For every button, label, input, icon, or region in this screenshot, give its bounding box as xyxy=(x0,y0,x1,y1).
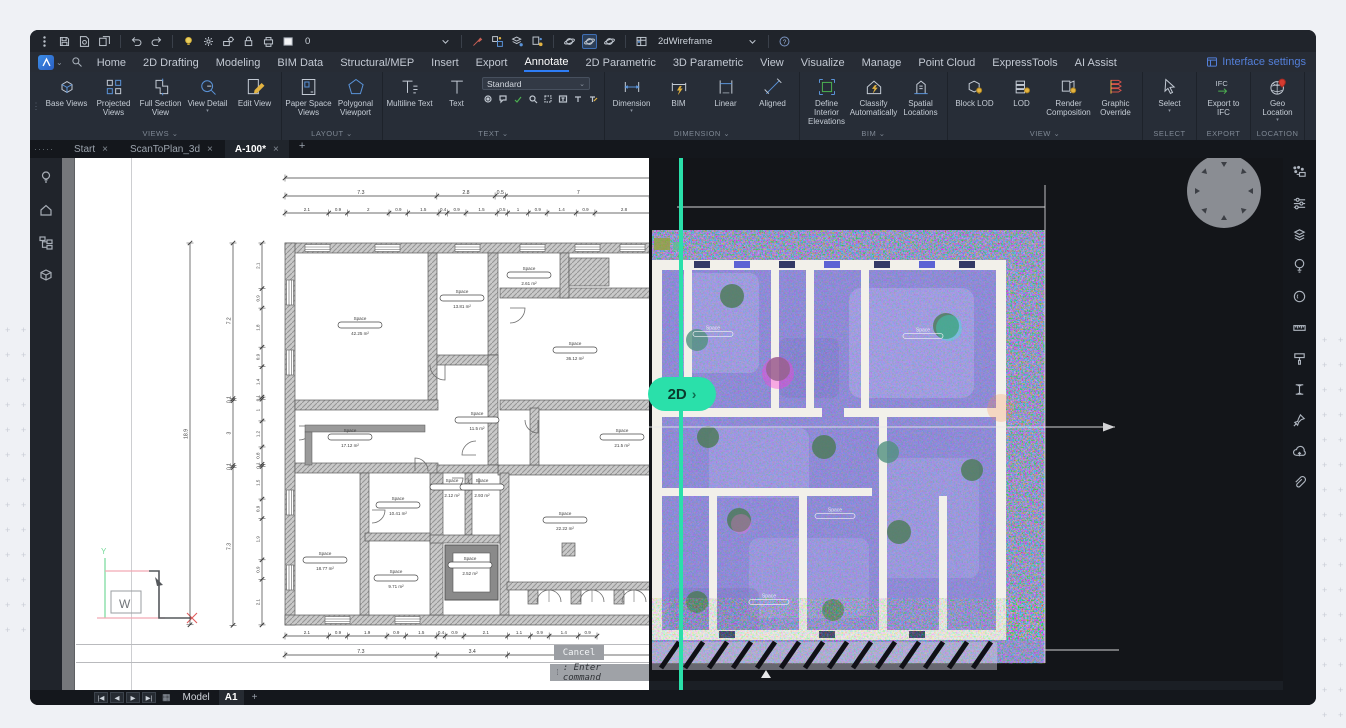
svg-text:W: W xyxy=(119,597,131,611)
tab-bar-grip[interactable]: ····· xyxy=(34,144,54,154)
room-label: Space36.12 m² xyxy=(553,341,597,361)
svg-text:7.2: 7.2 xyxy=(227,317,233,324)
svg-text:1.4: 1.4 xyxy=(561,630,568,635)
svg-text:1: 1 xyxy=(517,207,520,212)
settings-gear-icon[interactable] xyxy=(201,34,216,49)
svg-text:0.5: 0.5 xyxy=(499,207,506,212)
svg-text:Space: Space xyxy=(616,428,629,433)
full-section-view-button[interactable]: Full Section View xyxy=(137,74,184,117)
dim-linear-icon xyxy=(716,76,736,98)
toolbar-separator xyxy=(625,35,626,48)
classify-icon xyxy=(864,76,884,98)
svg-text:13.81 m²: 13.81 m² xyxy=(453,304,471,309)
svg-text:Space: Space xyxy=(456,289,469,294)
drawing-canvas: Y W 7.32.80.572.10.920.91.50.40.91.50.51… xyxy=(62,158,1316,690)
svg-text:Space: Space xyxy=(392,496,405,501)
ribbon-group-location: Geo Location▾LOCATION xyxy=(1251,72,1305,140)
svg-text:0.9: 0.9 xyxy=(451,630,458,635)
light-button[interactable] xyxy=(1291,287,1309,305)
svg-text:0.8: 0.8 xyxy=(256,452,261,459)
find-icon[interactable] xyxy=(527,93,539,105)
layer-states-icon[interactable] xyxy=(510,34,525,49)
bottom-marker xyxy=(761,670,771,678)
svg-text:7: 7 xyxy=(577,190,580,196)
svg-text:18.77 m²: 18.77 m² xyxy=(316,566,334,571)
svg-text:2: 2 xyxy=(367,207,370,212)
svg-text:IFC: IFC xyxy=(1215,79,1228,88)
polygonal-viewport-icon xyxy=(346,76,366,98)
svg-text:7.3: 7.3 xyxy=(357,190,364,196)
svg-text:0.1: 0.1 xyxy=(227,463,233,470)
last-layout-button[interactable]: ▶| xyxy=(142,692,156,703)
toolbar-grip[interactable] xyxy=(37,34,52,49)
add-layout-button[interactable]: + xyxy=(247,692,263,703)
lod-icon xyxy=(1012,76,1032,98)
svg-text:0.1: 0.1 xyxy=(227,396,233,403)
menu-bar: ⌄ Home2D DraftingModelingBIM DataStructu… xyxy=(30,52,1316,72)
field-icon[interactable] xyxy=(482,93,494,105)
svg-text:21.5 m²: 21.5 m² xyxy=(614,443,630,448)
spatial-icon xyxy=(911,76,931,98)
next-layout-button[interactable]: ▶ xyxy=(126,692,140,703)
new-document-tab-button[interactable]: + xyxy=(291,140,313,158)
geo-location-button[interactable]: Geo Location▾ xyxy=(1254,74,1301,122)
ribbon-group-views: Base ViewsProjected ViewsFull Section Vi… xyxy=(40,72,282,140)
spell-check-icon[interactable] xyxy=(512,93,524,105)
layer-bulb-icon[interactable] xyxy=(181,34,196,49)
annotation-icon[interactable] xyxy=(497,93,509,105)
svg-text:0.9: 0.9 xyxy=(393,630,400,635)
room-label: Space13.81 m² xyxy=(440,289,484,309)
svg-text:2.61 m²: 2.61 m² xyxy=(521,281,537,286)
block-lod-button[interactable]: Block LOD xyxy=(951,74,998,108)
layer-settings-icon[interactable] xyxy=(221,34,236,49)
paint-button[interactable] xyxy=(1291,349,1309,367)
doc-tab-a-100[interactable]: A-100*× xyxy=(225,140,289,158)
viewport-point-cloud[interactable]: SpaceSpaceSpaceSpace xyxy=(649,158,1283,690)
menu-tab-structural-mep[interactable]: Structural/MEP xyxy=(340,54,414,71)
materials-button[interactable] xyxy=(1291,318,1309,336)
svg-text:0.9: 0.9 xyxy=(585,630,592,635)
margin-plus-pattern-right: ++++++++++++++++++++++++++++++++ xyxy=(1322,328,1346,728)
linear-button[interactable]: Linear xyxy=(702,74,749,108)
view-wireframe-icon[interactable] xyxy=(602,34,617,49)
chevron-down-icon: ⌄ xyxy=(579,80,585,88)
view-detail-button[interactable]: View Detail▾ xyxy=(184,74,231,113)
paper-space-views-icon xyxy=(299,76,319,98)
svg-text:Space: Space xyxy=(446,478,459,483)
svg-text:17.12 m²: 17.12 m² xyxy=(341,443,359,448)
color-swatch[interactable] xyxy=(281,34,296,49)
export-to-ifc-button[interactable]: IFCExport to IFC xyxy=(1200,74,1247,117)
select-icon xyxy=(1160,76,1180,98)
menu-tab-3d-parametric[interactable]: 3D Parametric xyxy=(673,54,743,71)
multiline-text-button[interactable]: Multiline Text xyxy=(386,74,433,108)
ribbon-group-export: IFCExport to IFCEXPORT xyxy=(1197,72,1251,140)
svg-text:Space: Space xyxy=(523,266,536,271)
properties-painter-icon[interactable] xyxy=(530,34,545,49)
svg-text:Space: Space xyxy=(916,328,930,334)
base-views-button[interactable]: Base Views xyxy=(43,74,90,108)
svg-text:36.12 m²: 36.12 m² xyxy=(566,356,584,361)
svg-text:2.8: 2.8 xyxy=(462,190,469,196)
dim-bim-icon xyxy=(669,76,689,98)
doc-tab-start[interactable]: Start× xyxy=(64,140,118,158)
block-lod-icon xyxy=(965,76,985,98)
svg-text:Space: Space xyxy=(559,511,572,516)
svg-text:0.9: 0.9 xyxy=(256,353,261,360)
geo-location-icon xyxy=(1268,76,1288,98)
svg-text:?: ? xyxy=(783,38,787,45)
menu-tab-export[interactable]: Export xyxy=(476,54,508,71)
right-toolbar xyxy=(1283,158,1316,690)
svg-text:Space: Space xyxy=(828,508,842,514)
horizontal-scrollbar[interactable] xyxy=(649,681,1283,690)
main-area: Y W 7.32.80.572.10.920.91.50.40.91.50.51… xyxy=(30,158,1316,690)
app-window: 02dWireframe? ⌄ Home2D DraftingModelingB… xyxy=(30,30,1316,705)
svg-text:Space: Space xyxy=(471,411,484,416)
svg-text:0.9: 0.9 xyxy=(335,207,342,212)
menu-tab-ai-assist[interactable]: AI Assist xyxy=(1075,54,1117,71)
menu-tab-view[interactable]: View xyxy=(760,54,784,71)
menu-tab-2d-parametric[interactable]: 2D Parametric xyxy=(586,54,656,71)
document-tab-bar: ····· Start×ScanToPlan_3d×A-100*×+ xyxy=(30,140,1316,158)
navigation-circle-widget[interactable] xyxy=(1187,158,1261,228)
tab-layout-a1[interactable]: A1 xyxy=(219,690,244,705)
view-shaded-icon[interactable] xyxy=(582,34,597,49)
svg-text:0.1: 0.1 xyxy=(256,462,261,469)
profiles-button[interactable] xyxy=(1291,380,1309,398)
svg-text:2.12 m²: 2.12 m² xyxy=(444,493,460,498)
layers-button[interactable] xyxy=(1291,225,1309,243)
svg-text:0.9: 0.9 xyxy=(537,630,544,635)
publish-icon[interactable] xyxy=(97,34,112,49)
left-toolbar xyxy=(30,158,62,690)
doc-tab-scantoplan-3d[interactable]: ScanToPlan_3d× xyxy=(120,140,223,158)
interface-settings-button[interactable]: Interface settings xyxy=(1206,52,1306,72)
svg-text:0.9: 0.9 xyxy=(395,207,402,212)
polygonal-viewport-button[interactable]: Polygonal Viewport xyxy=(332,74,379,117)
chevron-down-icon[interactable] xyxy=(438,34,453,49)
print-icon[interactable] xyxy=(261,34,276,49)
svg-text:11.5 m²: 11.5 m² xyxy=(470,426,485,431)
plot-preview-icon[interactable] xyxy=(77,34,92,49)
bim-button[interactable]: BIM xyxy=(655,74,702,108)
svg-text:Space: Space xyxy=(569,341,582,346)
2d-floor-plan: Y W 7.32.80.572.10.920.91.50.40.91.50.51… xyxy=(62,158,649,690)
chevron-right-icon: › xyxy=(692,386,697,402)
svg-text:2.93 m²: 2.93 m² xyxy=(474,493,490,498)
menu-tab-manage[interactable]: Manage xyxy=(862,54,902,71)
properties-button[interactable] xyxy=(1291,194,1309,212)
copy-style-icon[interactable] xyxy=(490,34,505,49)
cloud-upload-button[interactable] xyxy=(1291,442,1309,460)
svg-text:2.52 m²: 2.52 m² xyxy=(462,571,478,576)
svg-text:Space: Space xyxy=(390,569,403,574)
home-button[interactable] xyxy=(37,201,55,219)
command-input[interactable]: ⁞ : Enter command xyxy=(550,664,649,681)
svg-text:0.9: 0.9 xyxy=(335,630,342,635)
render-composition-button[interactable]: Render Composition xyxy=(1045,74,1092,117)
tips-bulb-button[interactable] xyxy=(37,168,55,186)
redo-icon[interactable] xyxy=(149,34,164,49)
ribbon-grip[interactable]: ⋮ xyxy=(32,72,40,140)
frame-select-icon[interactable] xyxy=(542,93,554,105)
menu-tab-modeling[interactable]: Modeling xyxy=(216,54,261,71)
menu-tab-bim-data[interactable]: BIM Data xyxy=(277,54,323,71)
svg-text:18.9: 18.9 xyxy=(184,429,190,439)
svg-text:Y: Y xyxy=(101,547,107,556)
menu-tab-visualize[interactable]: Visualize xyxy=(801,54,845,71)
dimension-button[interactable]: Dimension▾ xyxy=(608,74,655,113)
text-button[interactable]: Text xyxy=(433,74,480,108)
undo-icon[interactable] xyxy=(129,34,144,49)
svg-text:0.9: 0.9 xyxy=(256,295,261,302)
toolbar-separator xyxy=(768,35,769,48)
svg-text:1: 1 xyxy=(256,408,261,411)
chevron-down-icon[interactable] xyxy=(745,34,760,49)
svg-text:1.8: 1.8 xyxy=(256,324,261,331)
interior-elevations-icon xyxy=(817,76,837,98)
plan-counter xyxy=(305,425,425,465)
svg-text:10.41 m²: 10.41 m² xyxy=(389,511,407,516)
svg-text:0.9: 0.9 xyxy=(453,207,460,212)
tab-model[interactable]: Model xyxy=(177,692,216,703)
edit-view-button[interactable]: Edit View xyxy=(231,74,278,108)
render-composition-icon xyxy=(1059,76,1079,98)
compare-divider[interactable] xyxy=(679,158,683,690)
base-views-icon xyxy=(57,76,77,98)
edit-view-icon xyxy=(245,76,265,98)
help-icon[interactable]: ? xyxy=(777,34,792,49)
svg-text:Space: Space xyxy=(706,326,720,332)
svg-text:2.8: 2.8 xyxy=(621,207,628,212)
room-label: Space2.61 m² xyxy=(507,266,551,286)
svg-text:3: 3 xyxy=(227,431,233,434)
svg-text:9.71 m²: 9.71 m² xyxy=(388,584,404,589)
svg-text:0.9: 0.9 xyxy=(256,566,261,573)
ribbon-group-layout: Paper Space ViewsPolygonal ViewportLAYOU… xyxy=(282,72,383,140)
svg-text:2.1: 2.1 xyxy=(256,599,261,606)
toolbar-separator xyxy=(120,35,121,48)
lod-button[interactable]: LOD xyxy=(998,74,1045,108)
save-icon[interactable] xyxy=(57,34,72,49)
status-bar: |◀◀▶▶| ▦ Model A1 + xyxy=(30,690,1316,705)
svg-text:Space: Space xyxy=(464,556,477,561)
aligned-button[interactable]: Aligned xyxy=(749,74,796,108)
svg-text:1.5: 1.5 xyxy=(418,630,425,635)
svg-text:Space: Space xyxy=(354,316,367,321)
svg-text:2.1: 2.1 xyxy=(304,630,311,635)
text-edit-icon[interactable] xyxy=(587,93,599,105)
layout-grid-icon[interactable]: ▦ xyxy=(162,692,171,703)
svg-text:Space: Space xyxy=(476,478,489,483)
svg-text:22.22 m²: 22.22 m² xyxy=(556,526,574,531)
menu-tab-insert[interactable]: Insert xyxy=(431,54,459,71)
text-style-icon[interactable] xyxy=(572,93,584,105)
svg-text:2.1: 2.1 xyxy=(304,207,311,212)
svg-text:0.1: 0.1 xyxy=(256,395,261,402)
export-ifc-icon: IFC xyxy=(1214,76,1234,98)
point-cloud-view: SpaceSpaceSpaceSpace xyxy=(649,158,1280,690)
full-section-view-icon xyxy=(151,76,171,98)
visual-style-field[interactable]: 2dWireframe xyxy=(654,34,740,49)
menu-tab-point-cloud[interactable]: Point Cloud xyxy=(918,54,975,71)
ribbon-group-select: Select▾SELECT xyxy=(1143,72,1197,140)
close-icon[interactable]: × xyxy=(273,144,279,155)
structure-button[interactable] xyxy=(37,234,55,252)
svg-text:1.9: 1.9 xyxy=(364,630,371,635)
visual-style-icon[interactable] xyxy=(634,34,649,49)
svg-text:1.1: 1.1 xyxy=(516,630,523,635)
svg-text:0.9: 0.9 xyxy=(582,207,589,212)
room-label: Space18.77 m² xyxy=(303,551,347,571)
point-cloud-building xyxy=(652,230,1045,670)
svg-text:0.4: 0.4 xyxy=(440,207,447,212)
define-interior-elevations-button[interactable]: Define Interior Elevations xyxy=(803,74,850,127)
text-style-select[interactable]: Standard⌄ xyxy=(482,77,590,90)
room-label: Space9.71 m² xyxy=(374,569,418,589)
menu-tab-2d-drafting[interactable]: 2D Drafting xyxy=(143,54,199,71)
room-label: Space10.41 m² xyxy=(376,496,420,516)
close-icon[interactable]: × xyxy=(207,144,213,155)
chevron-down-icon[interactable]: ⌄ xyxy=(56,58,63,67)
svg-text:1.4: 1.4 xyxy=(256,378,261,385)
svg-text:1.4: 1.4 xyxy=(559,207,566,212)
search-icon[interactable] xyxy=(71,56,83,68)
menu-tab-home[interactable]: Home xyxy=(97,54,126,71)
command-echo: Cancel xyxy=(554,645,604,660)
svg-text:2.1: 2.1 xyxy=(256,262,261,269)
graphic-override-button[interactable]: Graphic Override xyxy=(1092,74,1139,117)
room-label: Space42.25 m² xyxy=(338,316,382,336)
text-icon xyxy=(447,76,467,98)
classify-automatically-button[interactable]: Classify Automatically xyxy=(850,74,897,117)
attachments-button[interactable] xyxy=(1291,473,1309,491)
svg-text:0.9: 0.9 xyxy=(535,207,542,212)
point-cloud-manager-button[interactable] xyxy=(1291,163,1309,181)
select-button[interactable]: Select▾ xyxy=(1146,74,1193,113)
svg-text:1.5: 1.5 xyxy=(256,479,261,486)
svg-text:1.2: 1.2 xyxy=(256,430,261,437)
ribbon-group-text: Multiline TextTextStandard⌄TEXT ⌄ xyxy=(383,72,605,140)
svg-text:1.5: 1.5 xyxy=(478,207,485,212)
svg-text:1.5: 1.5 xyxy=(420,207,427,212)
interface-settings-icon xyxy=(1206,56,1218,68)
svg-text:Space: Space xyxy=(319,551,332,556)
model-3d-button[interactable] xyxy=(37,267,55,285)
svg-text:7.3: 7.3 xyxy=(357,649,364,655)
svg-text:Space: Space xyxy=(344,428,357,433)
multiline-text-icon xyxy=(400,76,420,98)
prev-layout-button[interactable]: ◀ xyxy=(110,692,124,703)
first-layout-button[interactable]: |◀ xyxy=(94,692,108,703)
menu-tabs: Home2D DraftingModelingBIM DataStructura… xyxy=(97,53,1117,72)
room-label: Space21.5 m² xyxy=(600,428,644,448)
svg-text:2.1: 2.1 xyxy=(483,630,490,635)
compare-toggle-2d[interactable]: 2D › xyxy=(648,377,716,411)
layer-lock-icon[interactable] xyxy=(241,34,256,49)
match-properties-icon[interactable] xyxy=(470,34,485,49)
text-box-icon[interactable] xyxy=(557,93,569,105)
ribbon-group-bim: Define Interior ElevationsClassify Autom… xyxy=(800,72,948,140)
toolbar-separator xyxy=(553,35,554,48)
spatial-locations-button[interactable]: Spatial Locations xyxy=(897,74,944,117)
pin-button[interactable] xyxy=(1291,411,1309,429)
toolbar-separator xyxy=(461,35,462,48)
ribbon: ⋮ Base ViewsProjected ViewsFull Section … xyxy=(30,72,1316,140)
layer-field[interactable]: 0 xyxy=(301,34,433,49)
view-detail-icon xyxy=(198,76,218,98)
projected-views-button[interactable]: Projected Views xyxy=(90,74,137,117)
ucs-icon: Y W xyxy=(97,547,197,623)
dim-aligned-icon xyxy=(763,76,783,98)
svg-text:Space: Space xyxy=(762,594,776,600)
app-logo-icon[interactable] xyxy=(38,55,54,70)
graphic-override-icon xyxy=(1106,76,1126,98)
dimension-icon xyxy=(622,76,642,98)
svg-text:3.4: 3.4 xyxy=(469,649,476,655)
toolbar-separator xyxy=(172,35,173,48)
menu-tab-annotate[interactable]: Annotate xyxy=(524,53,568,72)
menu-tab-expresstools[interactable]: ExpressTools xyxy=(992,54,1057,71)
ribbon-group-view: Block LODLODRender CompositionGraphic Ov… xyxy=(948,72,1143,140)
svg-text:0.9: 0.9 xyxy=(256,505,261,512)
ribbon-group-dimension: Dimension▾BIMLinearAlignedDIMENSION ⌄ xyxy=(605,72,800,140)
paper-space-views-button[interactable]: Paper Space Views xyxy=(285,74,332,117)
svg-text:0.5: 0.5 xyxy=(497,190,504,196)
viewport-2d-plan[interactable]: Y W 7.32.80.572.10.920.91.50.40.91.50.51… xyxy=(62,158,649,690)
svg-text:1.9: 1.9 xyxy=(256,536,261,543)
svg-text:0.4: 0.4 xyxy=(438,630,445,635)
render-balloon-button[interactable] xyxy=(1291,256,1309,274)
svg-text:42.25 m²: 42.25 m² xyxy=(351,331,369,336)
room-label: Space22.22 m² xyxy=(543,511,587,531)
view-orbit-icon[interactable] xyxy=(562,34,577,49)
quick-access-toolbar: 02dWireframe? xyxy=(30,30,1316,52)
projected-views-icon xyxy=(104,76,124,98)
command-grip-icon: ⁞ xyxy=(555,668,559,678)
svg-text:7.3: 7.3 xyxy=(227,543,233,550)
close-icon[interactable]: × xyxy=(102,144,108,155)
